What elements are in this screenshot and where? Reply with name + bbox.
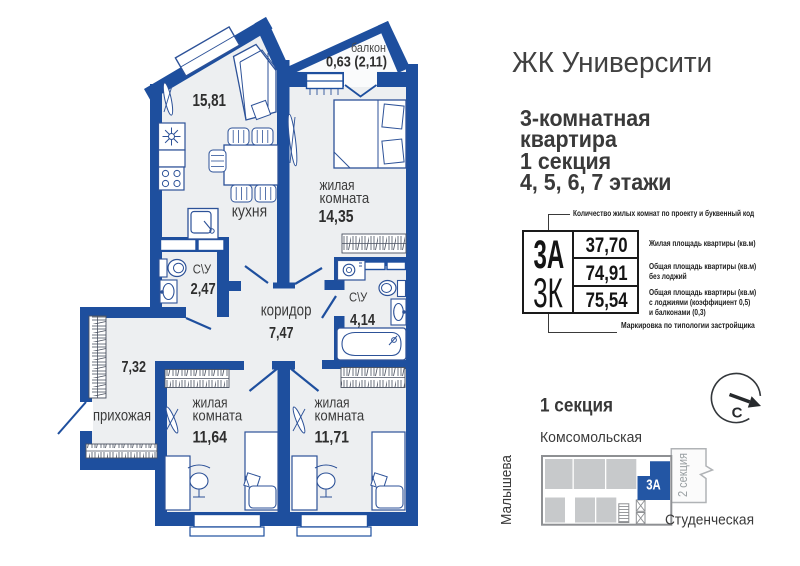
svg-text:С: С	[732, 405, 743, 422]
svg-text:кухня: кухня	[232, 203, 267, 221]
svg-text:11,71: 11,71	[315, 427, 350, 446]
svg-text:Малышева: Малышева	[498, 454, 515, 525]
svg-text:7,47: 7,47	[269, 325, 294, 342]
svg-text:3А: 3А	[646, 478, 661, 494]
svg-text:14,35: 14,35	[319, 206, 354, 226]
svg-text:15,81: 15,81	[193, 90, 227, 110]
svg-text:комната: комната	[320, 190, 370, 207]
svg-text:11,64: 11,64	[193, 427, 228, 446]
svg-text:2 секция: 2 секция	[676, 453, 690, 497]
svg-text:0,63 (2,11): 0,63 (2,11)	[326, 55, 387, 71]
svg-text:С\У: С\У	[193, 261, 212, 276]
svg-text:прихожая: прихожая	[93, 408, 151, 425]
svg-text:Комсомольская: Комсомольская	[540, 429, 642, 446]
svg-text:2,47: 2,47	[191, 281, 216, 298]
svg-text:Студенческая: Студенческая	[665, 512, 754, 529]
svg-text:комната: комната	[315, 408, 365, 425]
svg-text:коридор: коридор	[261, 302, 312, 320]
svg-text:1 секция: 1 секция	[540, 396, 613, 417]
svg-text:балкон: балкон	[351, 40, 386, 55]
svg-text:7,32: 7,32	[122, 359, 147, 376]
svg-text:С\У: С\У	[349, 290, 368, 305]
svg-text:комната: комната	[193, 408, 243, 425]
svg-text:4,14: 4,14	[350, 312, 375, 329]
